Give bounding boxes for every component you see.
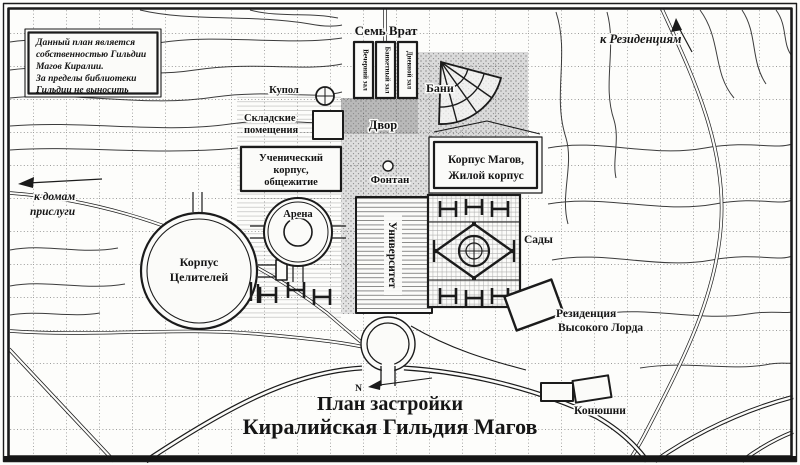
university-label: Университет xyxy=(386,222,398,289)
map-title-line-2: Киралийская Гильдия Магов xyxy=(243,414,538,439)
residence-label-1: Резиденция xyxy=(556,308,616,320)
magicians-label-1: Корпус Магов, xyxy=(448,154,524,166)
baths-label: Бани xyxy=(426,81,454,95)
arena-label: Арена xyxy=(283,209,313,220)
banquet-hall-label: Банкетный зал xyxy=(384,47,391,94)
novices-building: Ученический корпус, общежитие xyxy=(241,147,341,191)
fountain-label: Фонтан xyxy=(371,174,410,186)
healers-label-1: Корпус xyxy=(180,255,219,269)
to-servants-label-2: прислуги xyxy=(30,206,76,218)
to-residences-label: к Резиденциям xyxy=(600,32,682,46)
novices-label-3: общежитие xyxy=(264,177,318,188)
magicians-label-2: Жилой корпус xyxy=(448,170,523,182)
gardens-label: Сады xyxy=(524,234,553,246)
novices-label-1: Ученический xyxy=(259,153,323,164)
residence-label-2: Высокого Лорда xyxy=(558,322,643,334)
notice-line-5: Гильдии не выносить xyxy=(35,85,129,96)
to-servants-label-1: к домам xyxy=(34,191,75,203)
healers-label-2: Целителей xyxy=(170,270,229,284)
novices-label-2: корпус, xyxy=(273,165,309,176)
day-hall-label: Дневной зал xyxy=(406,51,413,89)
map-title-line-1: План застройки xyxy=(317,393,463,415)
notice-line-3: Магов Киралии. xyxy=(35,61,104,72)
dome-label: Купол xyxy=(269,85,299,96)
courtyard-label: Двор xyxy=(369,118,398,132)
notice-line-4: За пределы библиотеки xyxy=(35,73,137,84)
university-building: Университет xyxy=(356,197,432,313)
evening-hall-label: Вечерний зал xyxy=(362,49,369,91)
seven-gates-label: Семь Врат xyxy=(355,23,418,38)
map-canvas: Университет Корпус Магов, Жилой корпус У… xyxy=(0,0,800,465)
formal-gardens xyxy=(428,195,520,307)
notice-line-2: собственностью Гильдии xyxy=(36,49,147,60)
bottom-border-band xyxy=(4,456,796,461)
seven-gates-halls: Вечерний зал Банкетный зал Дневной зал С… xyxy=(354,23,418,98)
storage-label-1: Складские xyxy=(244,113,296,124)
gate-stem xyxy=(382,362,394,386)
notice-box: Данный план является собственностью Гиль… xyxy=(25,29,161,97)
guild-map: Университет Корпус Магов, Жилой корпус У… xyxy=(0,0,800,465)
stables-label: Конюшни xyxy=(574,405,626,417)
storage-building: Складские помещения xyxy=(244,111,343,139)
notice-line-1: Данный план является xyxy=(35,37,135,48)
storage-label-2: помещения xyxy=(244,125,299,136)
